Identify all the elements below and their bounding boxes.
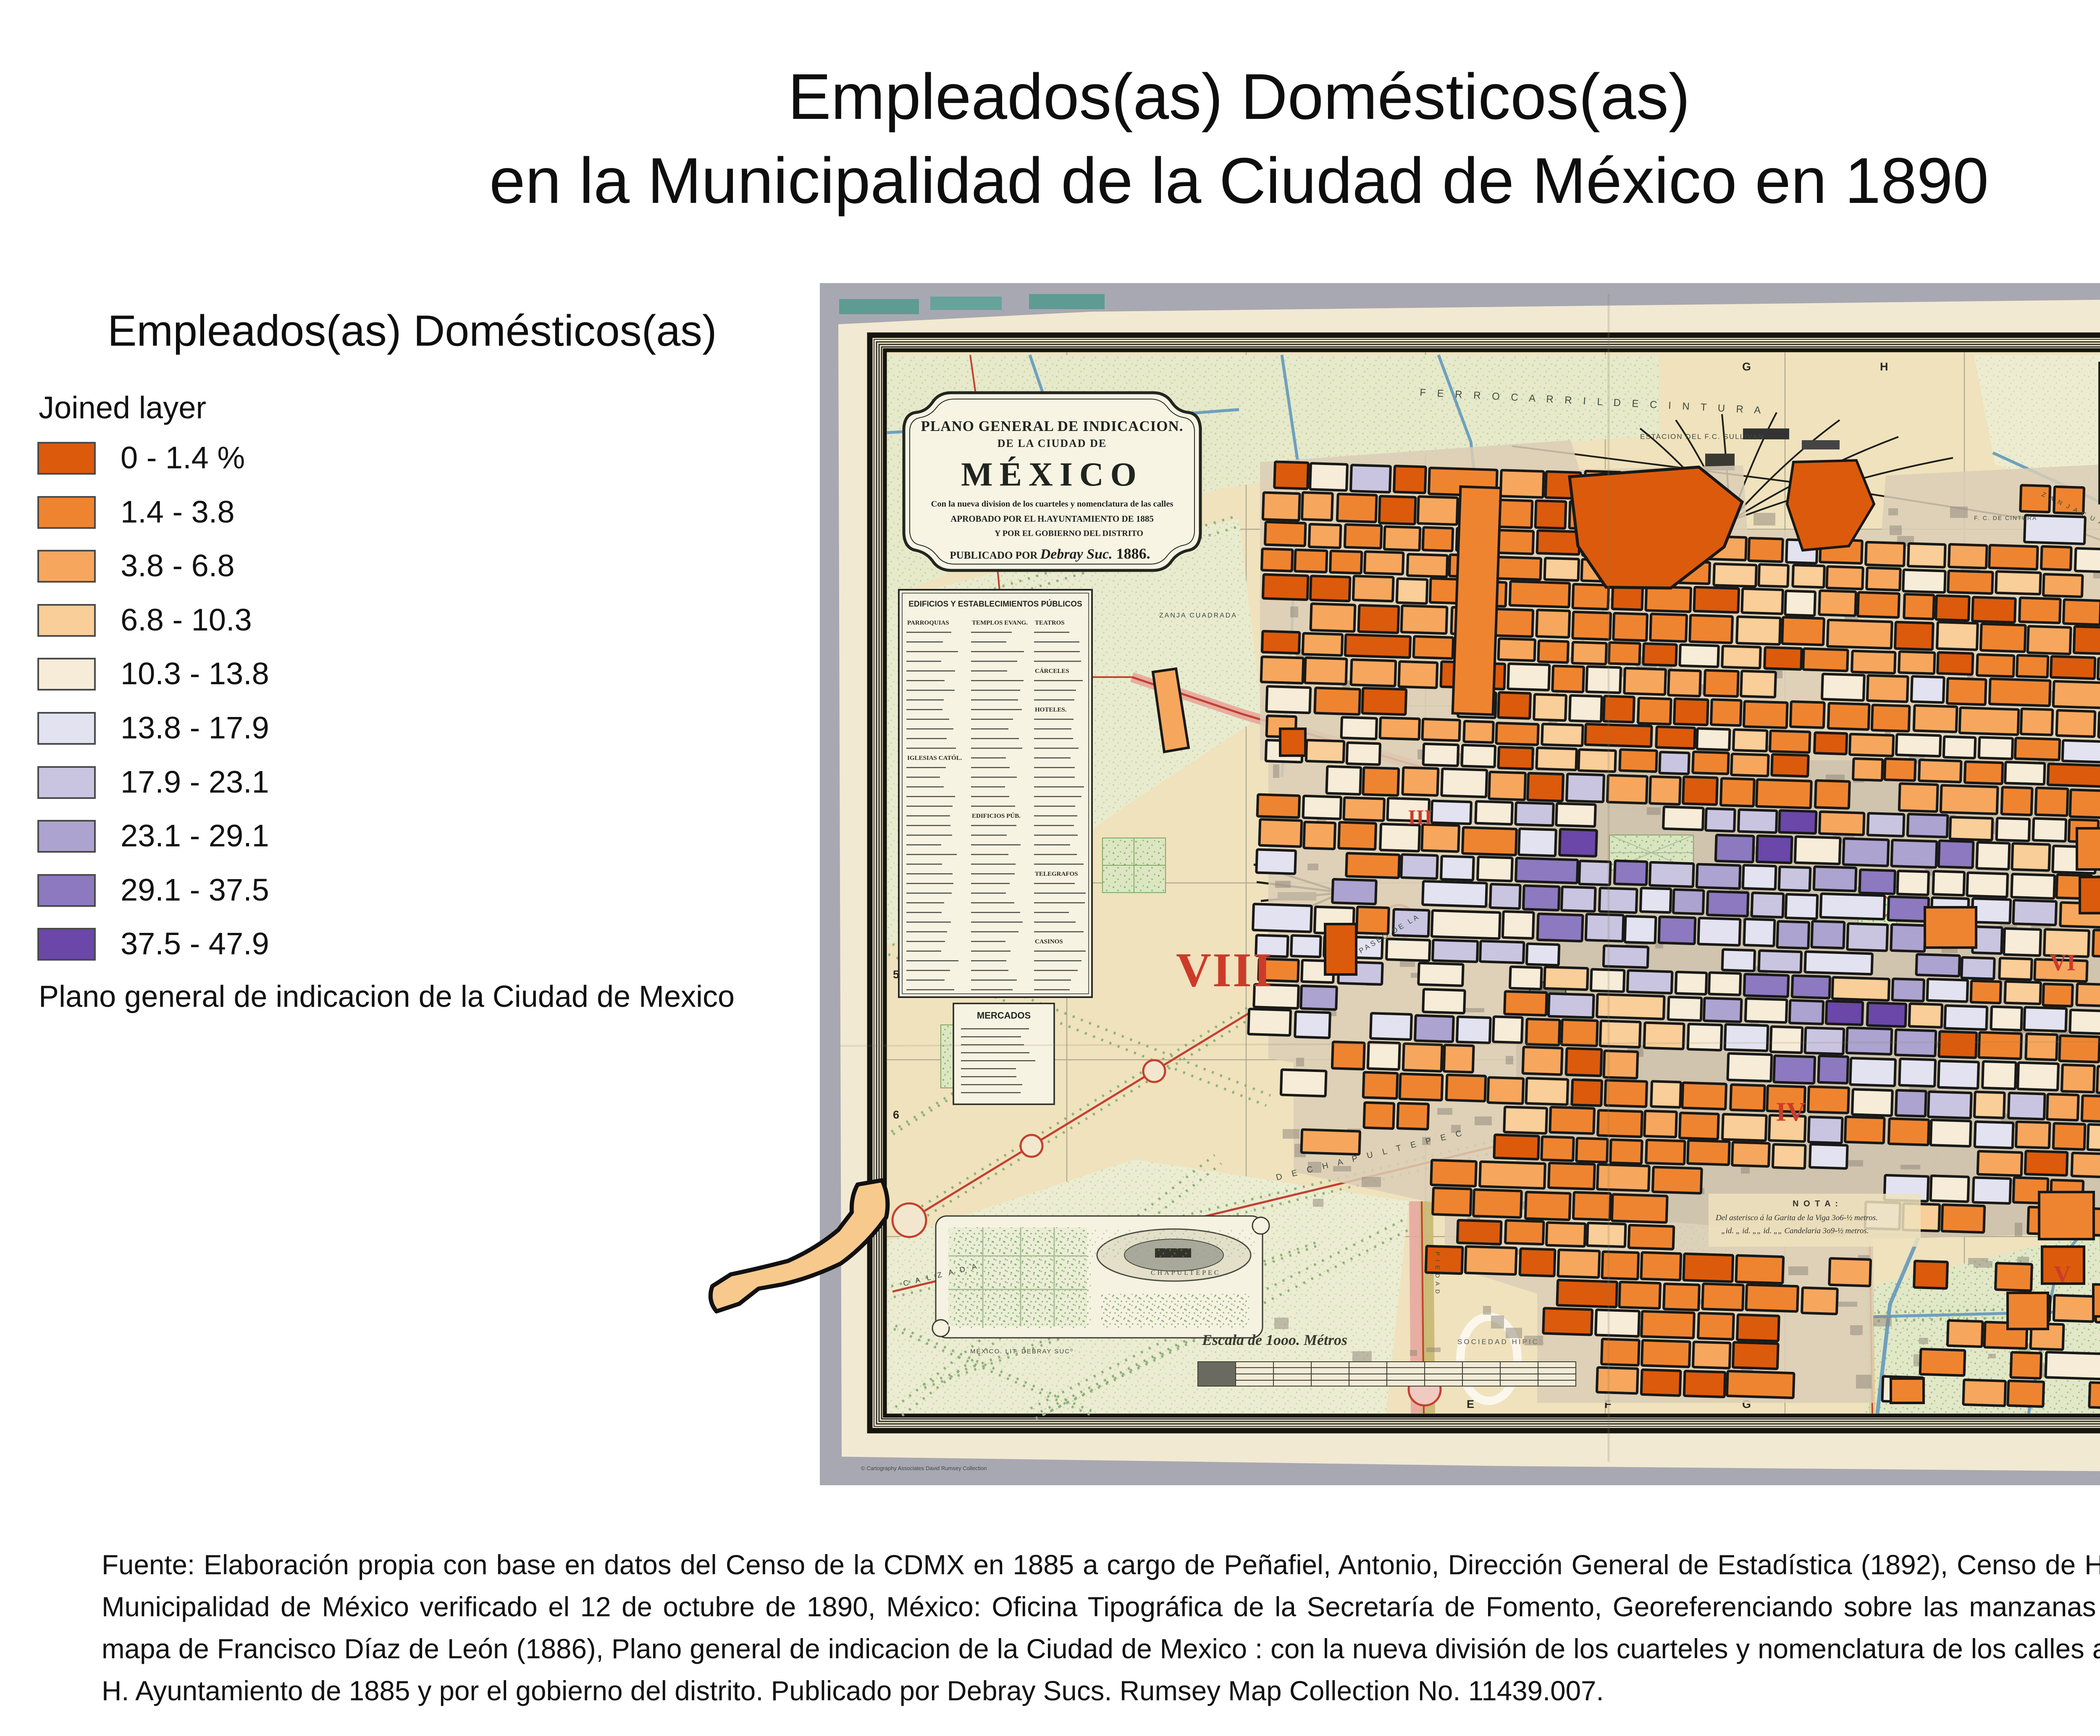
svg-text:E: E <box>1467 1398 1474 1410</box>
svg-text:EDIFICIOS PÚB.: EDIFICIOS PÚB. <box>972 812 1021 819</box>
svg-text:DE LA CIUDAD DE: DE LA CIUDAD DE <box>997 437 1107 449</box>
svg-text:CASINOS: CASINOS <box>1035 938 1063 945</box>
svg-text:TEATROS: TEATROS <box>1035 620 1065 626</box>
svg-text:P I E D A D: P I E D A D <box>1434 1252 1441 1295</box>
svg-text:CHAPULTEPEC: CHAPULTEPEC <box>1151 1269 1221 1276</box>
svg-text:„id. „ id. „„ id. „„ Can: „id. „ id. „„ id. „„ Candelaria 3o9-½ me… <box>1721 1226 1869 1235</box>
svg-text:Del asterisco á la Garita de l: Del asterisco á la Garita de la Viga 3o6… <box>1715 1213 1878 1222</box>
svg-text:CÁRCELES: CÁRCELES <box>1035 667 1069 675</box>
svg-text:MÉXICO. LIT. DEBRAY SUC⁰: MÉXICO. LIT. DEBRAY SUC⁰ <box>970 1348 1074 1355</box>
svg-text:TEMPLOS EVANG.: TEMPLOS EVANG. <box>972 620 1028 626</box>
svg-text:N O T A :: N O T A : <box>1793 1199 1839 1208</box>
svg-text:APROBADO POR EL H.AYUNTAMIENTO: APROBADO POR EL H.AYUNTAMIENTO DE 1885 <box>950 514 1154 524</box>
svg-text:6: 6 <box>893 1108 899 1121</box>
svg-text:V: V <box>2054 1261 2071 1287</box>
svg-text:HOTELES.: HOTELES. <box>1035 706 1067 713</box>
svg-text:G: G <box>1742 360 1751 373</box>
svg-text:PLANO GENERAL DE INDICACION.: PLANO GENERAL DE INDICACION. <box>921 418 1183 434</box>
svg-text:H: H <box>1880 360 1888 373</box>
svg-text:VIII: VIII <box>1176 943 1273 997</box>
svg-text:VI: VI <box>2050 950 2076 976</box>
svg-text:F. C. DE CINTURA: F. C. DE CINTURA <box>1974 515 2037 521</box>
svg-text:Escala de 1ooo. Métros: Escala de 1ooo. Métros <box>1202 1332 1347 1348</box>
svg-text:EDIFICIOS Y ESTABLECIMIENTOS P: EDIFICIOS Y ESTABLECIMIENTOS PÚBLICOS <box>908 599 1082 609</box>
svg-text:ZANJA CUADRADA: ZANJA CUADRADA <box>1159 612 1237 619</box>
svg-text:Con la nueva division de los c: Con la nueva division de los cuarteles y… <box>931 499 1173 509</box>
svg-text:PARROQUIAS: PARROQUIAS <box>907 620 949 626</box>
svg-text:ESTACION DEL F.C. SULLIVAN: ESTACION DEL F.C. SULLIVAN <box>1640 433 1764 441</box>
svg-text:MÉXICO: MÉXICO <box>961 456 1143 493</box>
svg-text:Y POR EL GOBIERNO DEL DISTRITO: Y POR EL GOBIERNO DEL DISTRITO <box>995 529 1143 538</box>
svg-text:IGLESIAS CATÓL.: IGLESIAS CATÓL. <box>907 754 962 762</box>
svg-text:IV: IV <box>1776 1097 1806 1127</box>
svg-text:TELEGRAFOS: TELEGRAFOS <box>1035 871 1078 877</box>
svg-text:MERCADOS: MERCADOS <box>977 1010 1031 1021</box>
svg-text:III: III <box>1408 805 1432 829</box>
svg-text:© Cartography Associates David: © Cartography Associates David Rumsey Co… <box>861 1465 987 1471</box>
